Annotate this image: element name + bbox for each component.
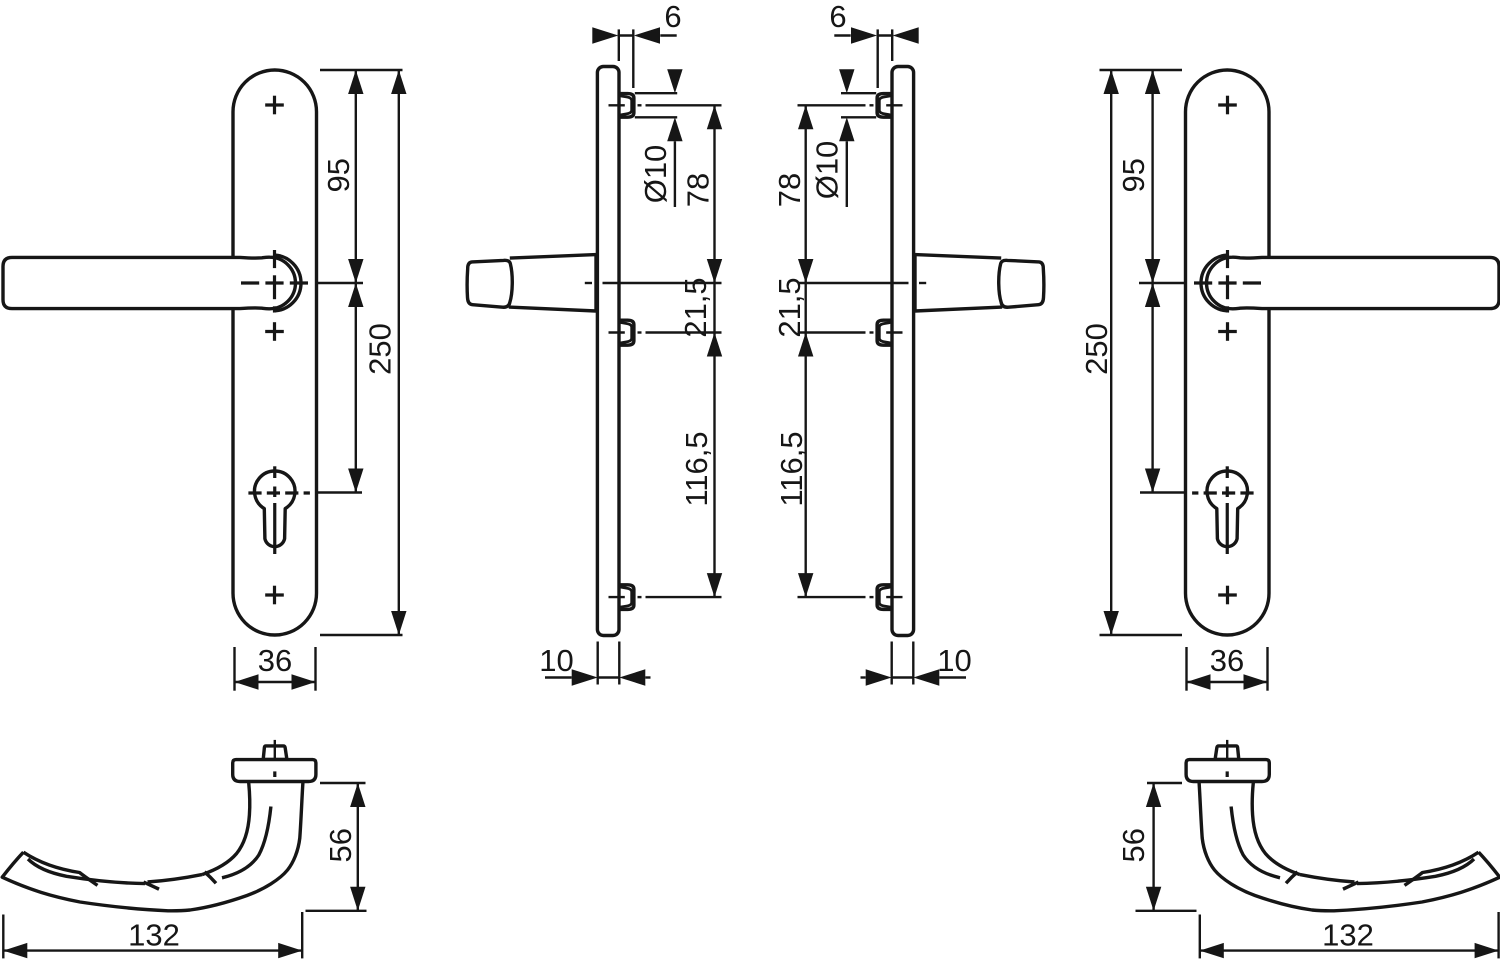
svg-text:21,5: 21,5 [678,277,713,337]
svg-text:21,5: 21,5 [772,277,807,337]
svg-text:250: 250 [1079,323,1114,375]
svg-text:6: 6 [829,0,846,34]
svg-text:36: 36 [258,643,292,678]
svg-text:78: 78 [772,173,807,207]
svg-text:10: 10 [937,643,971,678]
svg-text:132: 132 [1322,917,1374,952]
svg-text:Ø10: Ø10 [810,141,845,200]
svg-text:250: 250 [363,323,398,375]
svg-text:6: 6 [664,0,681,34]
svg-text:36: 36 [1210,643,1244,678]
svg-text:10: 10 [539,643,573,678]
svg-text:116,5: 116,5 [774,431,809,506]
svg-text:116,5: 116,5 [679,431,714,506]
svg-text:132: 132 [128,917,180,952]
svg-text:95: 95 [321,158,356,192]
svg-text:78: 78 [681,173,716,207]
svg-text:56: 56 [1116,828,1151,862]
svg-text:56: 56 [323,828,358,862]
svg-text:95: 95 [1116,158,1151,192]
svg-text:Ø10: Ø10 [638,145,673,204]
